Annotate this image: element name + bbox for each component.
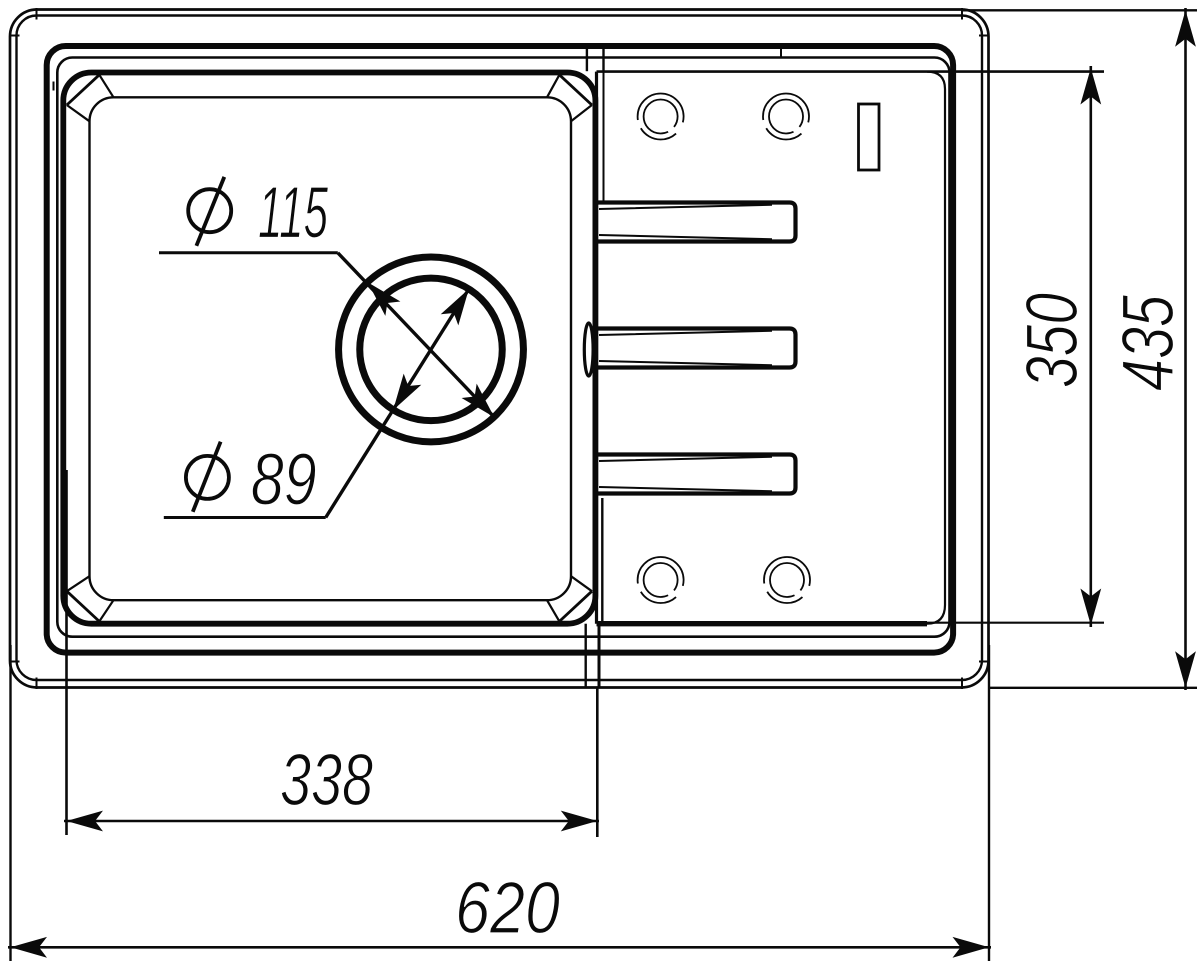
svg-text:350: 350 <box>1012 293 1093 388</box>
svg-text:435: 435 <box>1108 295 1189 391</box>
svg-text:338: 338 <box>280 740 373 821</box>
svg-text:620: 620 <box>455 868 560 949</box>
svg-text:115: 115 <box>258 173 328 254</box>
svg-text:89: 89 <box>251 440 317 521</box>
